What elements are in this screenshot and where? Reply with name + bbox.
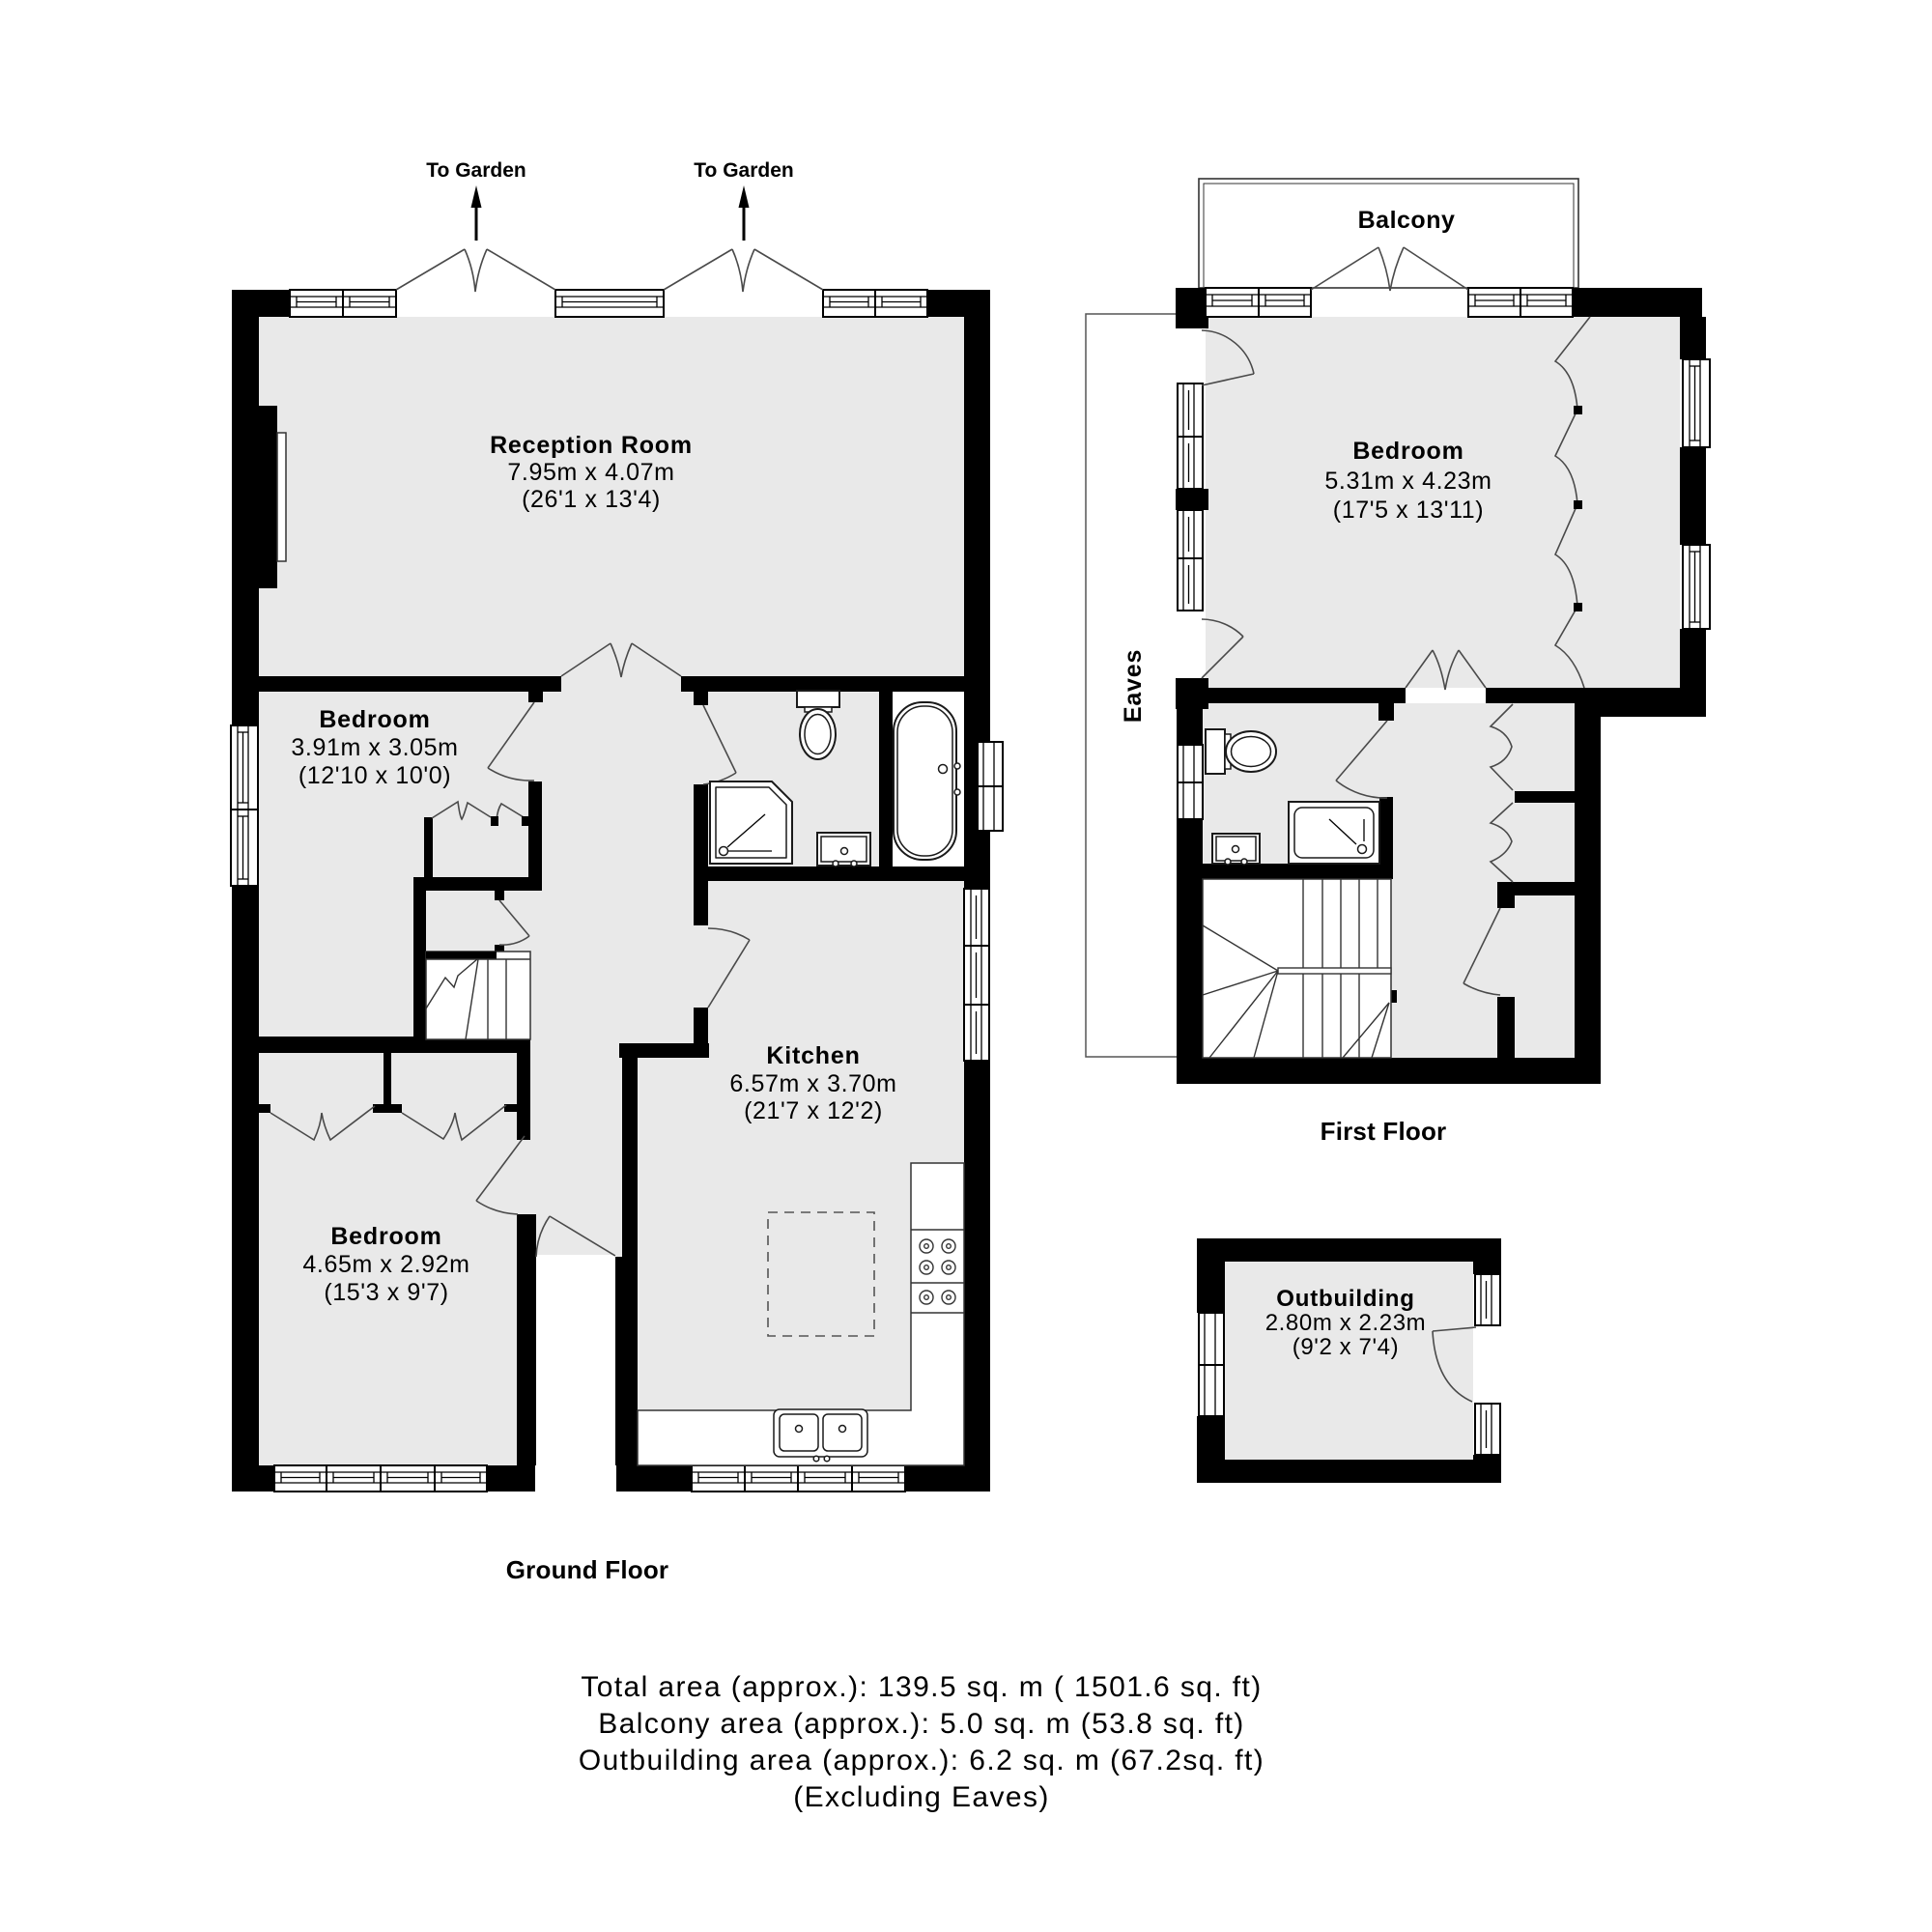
svg-text:To Garden: To Garden (694, 159, 793, 182)
svg-text:(9'2 x 7'4): (9'2 x 7'4) (1293, 1334, 1399, 1360)
svg-text:Reception Room: Reception Room (490, 432, 693, 459)
svg-text:Outbuilding: Outbuilding (1276, 1286, 1414, 1312)
svg-text:(12'10 x 10'0): (12'10 x 10'0) (298, 762, 451, 789)
svg-text:Bedroom: Bedroom (330, 1223, 441, 1250)
svg-text:5.31m x 4.23m: 5.31m x 4.23m (1324, 468, 1492, 495)
svg-text:(15'3 x 9'7): (15'3 x 9'7) (324, 1279, 448, 1306)
svg-text:Total area (approx.): 139.5 sq: Total area (approx.): 139.5 sq. m ( 1501… (581, 1671, 1262, 1703)
svg-text:Eaves: Eaves (1120, 649, 1147, 723)
svg-text:Balcony area (approx.): 5.0 sq: Balcony area (approx.): 5.0 sq. m (53.8 … (598, 1708, 1244, 1740)
svg-text:(Excluding Eaves): (Excluding Eaves) (793, 1781, 1050, 1813)
svg-text:Kitchen: Kitchen (766, 1042, 860, 1069)
svg-text:2.80m x 2.23m: 2.80m x 2.23m (1265, 1310, 1427, 1336)
svg-text:Bedroom: Bedroom (319, 706, 430, 733)
svg-text:To Garden: To Garden (426, 159, 526, 182)
svg-text:(26'1 x 13'4): (26'1 x 13'4) (522, 486, 661, 513)
svg-text:(21'7 x 12'2): (21'7 x 12'2) (744, 1097, 883, 1124)
svg-text:(17'5 x 13'11): (17'5 x 13'11) (1333, 497, 1484, 524)
svg-text:Balcony: Balcony (1358, 207, 1456, 234)
svg-text:3.91m x 3.05m: 3.91m x 3.05m (291, 734, 458, 761)
svg-text:Ground Floor: Ground Floor (506, 1555, 668, 1584)
svg-text:First Floor: First Floor (1321, 1117, 1447, 1146)
svg-text:Bedroom: Bedroom (1352, 438, 1463, 465)
svg-text:Outbuilding area (approx.): 6.: Outbuilding area (approx.): 6.2 sq. m (6… (579, 1745, 1264, 1776)
svg-text:4.65m x 2.92m: 4.65m x 2.92m (302, 1251, 469, 1278)
svg-text:7.95m x 4.07m: 7.95m x 4.07m (507, 459, 674, 486)
svg-text:6.57m x 3.70m: 6.57m x 3.70m (729, 1070, 896, 1097)
